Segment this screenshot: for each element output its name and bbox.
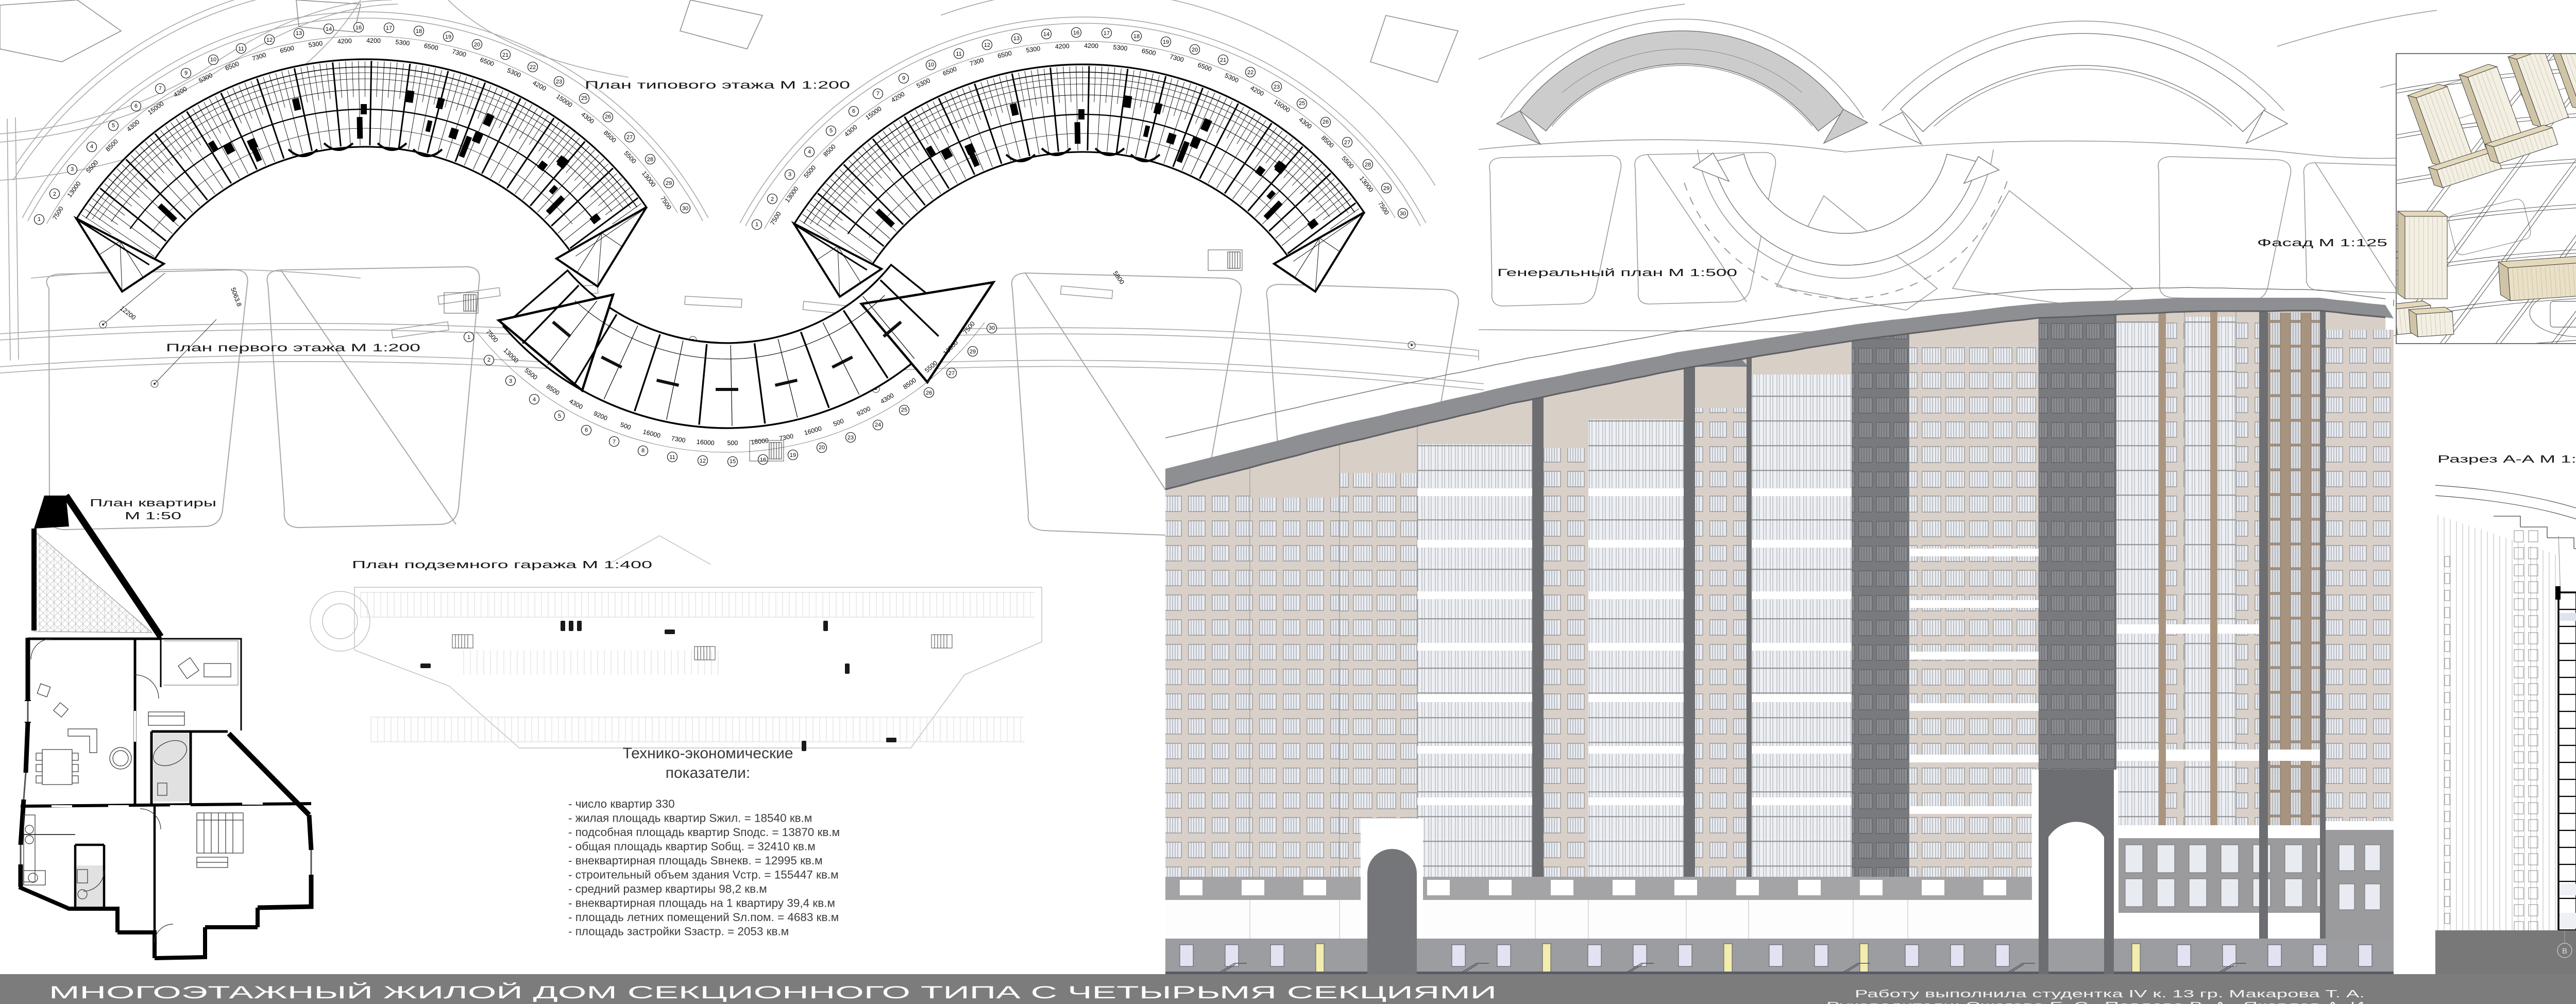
svg-text:11: 11: [956, 51, 961, 57]
svg-text:20: 20: [474, 42, 480, 48]
svg-text:16: 16: [355, 25, 362, 31]
svg-text:1: 1: [38, 216, 41, 223]
svg-text:11: 11: [669, 454, 675, 461]
svg-text:5: 5: [829, 128, 833, 134]
svg-text:16: 16: [1073, 30, 1079, 36]
svg-text:- площадь застройки Sзастр. =: - площадь застройки Sзастр. = 2053 кв.м: [568, 925, 789, 938]
svg-text:4200: 4200: [337, 37, 352, 45]
svg-text:7: 7: [876, 91, 879, 97]
svg-text:20: 20: [819, 445, 825, 451]
svg-text:10: 10: [928, 62, 934, 68]
svg-text:4200: 4200: [1055, 42, 1070, 50]
svg-text:2: 2: [771, 196, 774, 202]
svg-text:29: 29: [970, 349, 976, 355]
svg-text:5300: 5300: [1113, 44, 1128, 53]
svg-text:29: 29: [666, 180, 672, 186]
svg-text:B: B: [2562, 947, 2567, 956]
svg-text:21: 21: [1220, 57, 1226, 63]
svg-text:27: 27: [948, 370, 955, 377]
svg-text:28: 28: [1365, 162, 1371, 168]
svg-text:5300: 5300: [395, 39, 410, 47]
svg-text:М 1:50: М 1:50: [125, 510, 181, 522]
svg-text:1: 1: [755, 222, 758, 228]
svg-text:План подземного гаража М 1:400: План подземного гаража М 1:400: [352, 559, 652, 571]
svg-text:5: 5: [558, 413, 561, 419]
svg-text:19: 19: [1163, 39, 1169, 45]
svg-text:12: 12: [984, 42, 990, 48]
svg-text:5: 5: [112, 123, 115, 129]
svg-text:19: 19: [790, 452, 796, 458]
svg-text:18: 18: [1133, 33, 1140, 40]
svg-text:План квартиры: План квартиры: [90, 498, 216, 509]
svg-text:14: 14: [326, 26, 332, 32]
svg-text:25: 25: [901, 407, 907, 413]
svg-text:14: 14: [1043, 31, 1049, 38]
svg-text:17: 17: [1104, 30, 1110, 37]
svg-text:22: 22: [1247, 70, 1253, 76]
svg-text:показатели:: показатели:: [666, 764, 751, 781]
svg-text:23: 23: [848, 435, 854, 441]
svg-text:- общая площадь квартир Sобщ.: - общая площадь квартир Sобщ. = 32410 кв…: [568, 840, 816, 853]
svg-text:28: 28: [647, 157, 653, 163]
svg-text:- число квартир 330: - число квартир 330: [568, 797, 675, 810]
svg-text:9: 9: [184, 70, 188, 76]
svg-text:21: 21: [502, 52, 509, 58]
svg-text:25: 25: [1299, 100, 1305, 107]
svg-text:15: 15: [730, 458, 736, 465]
svg-text:12: 12: [266, 37, 273, 43]
svg-text:3: 3: [788, 172, 791, 178]
svg-text:500: 500: [727, 439, 738, 447]
svg-text:Руководители: Ожегова Е. С., П: Руководители: Ожегова Е. С., Павлова В. …: [1826, 1000, 2370, 1004]
svg-text:4: 4: [808, 149, 811, 155]
svg-text:4200: 4200: [366, 37, 381, 44]
svg-text:27: 27: [1344, 140, 1350, 146]
svg-text:- площадь летних помещений Sл.: - площадь летних помещений Sл.пом. = 468…: [568, 911, 839, 924]
svg-text:План типового этажа М 1:200: План типового этажа М 1:200: [585, 79, 850, 91]
svg-text:8: 8: [641, 448, 645, 454]
svg-text:- внеквартирная площадь на 1 к: - внеквартирная площадь на 1 квартиру 39…: [568, 897, 835, 910]
svg-text:20: 20: [1192, 47, 1198, 53]
svg-text:26: 26: [605, 114, 611, 120]
svg-text:Технико-экономические: Технико-экономические: [622, 745, 793, 762]
svg-text:22: 22: [530, 64, 536, 71]
svg-text:3: 3: [509, 378, 512, 384]
svg-text:13: 13: [1013, 36, 1020, 42]
svg-text:План первого этажа М 1:200: План первого этажа М 1:200: [166, 342, 420, 354]
svg-text:7: 7: [613, 439, 616, 445]
svg-text:Работу выполнила студентка IV: Работу выполнила студентка IV к. 13 гр. …: [1855, 989, 2365, 1000]
svg-text:- жилая площадь квартир Sжил.: - жилая площадь квартир Sжил. = 18540 кв…: [568, 812, 812, 825]
svg-text:- внеквартирная площадь Sвнекв: - внеквартирная площадь Sвнекв. = 12995 …: [568, 854, 823, 867]
svg-text:Разрез А-А М 1:200: Разрез А-А М 1:200: [2437, 454, 2576, 465]
svg-text:2: 2: [53, 191, 56, 197]
svg-text:10: 10: [210, 57, 216, 63]
svg-text:3: 3: [71, 166, 74, 173]
svg-text:16000: 16000: [696, 438, 715, 447]
svg-text:26: 26: [926, 390, 932, 396]
svg-text:18: 18: [416, 28, 422, 35]
svg-text:6: 6: [852, 108, 855, 114]
svg-text:17: 17: [386, 25, 392, 31]
svg-text:29: 29: [1383, 185, 1389, 192]
svg-text:12: 12: [700, 458, 706, 464]
svg-text:11: 11: [238, 46, 244, 52]
svg-text:1: 1: [467, 334, 470, 341]
svg-text:30: 30: [989, 325, 995, 331]
svg-text:4: 4: [533, 397, 536, 403]
svg-text:27: 27: [626, 134, 633, 141]
svg-text:7: 7: [159, 86, 162, 92]
svg-text:23: 23: [1274, 84, 1280, 90]
svg-text:- средний размер квартиры 98,2: - средний размер квартиры 98,2 кв.м: [568, 882, 767, 895]
svg-text:4: 4: [90, 144, 93, 150]
svg-text:19: 19: [445, 34, 451, 40]
svg-text:16: 16: [760, 457, 766, 463]
svg-text:30: 30: [682, 206, 688, 212]
svg-text:МНОГОЭТАЖНЫЙ ЖИЛОЙ ДОМ СЕКЦИОН: МНОГОЭТАЖНЫЙ ЖИЛОЙ ДОМ СЕКЦИОННОГО ТИПА …: [49, 983, 1497, 1002]
svg-text:23: 23: [556, 79, 562, 85]
svg-text:30: 30: [1400, 211, 1406, 217]
svg-text:4200: 4200: [1084, 42, 1098, 49]
svg-text:9: 9: [902, 75, 905, 81]
svg-text:Генеральный план М 1:500: Генеральный план М 1:500: [1497, 267, 1737, 279]
svg-text:6: 6: [134, 103, 138, 109]
svg-text:- строительный объем здания Vс: - строительный объем здания Vстр. = 1554…: [568, 869, 839, 881]
svg-text:6: 6: [585, 427, 588, 433]
svg-text:25: 25: [581, 95, 587, 101]
svg-text:Фасад М 1:125: Фасад М 1:125: [2257, 237, 2387, 249]
svg-text:2: 2: [487, 357, 490, 363]
svg-text:- подсобная площадь квартир Sп: - подсобная площадь квартир Sподс. = 138…: [568, 826, 840, 839]
svg-text:26: 26: [1323, 119, 1329, 125]
svg-text:13: 13: [296, 30, 302, 37]
svg-text:24: 24: [875, 422, 881, 428]
